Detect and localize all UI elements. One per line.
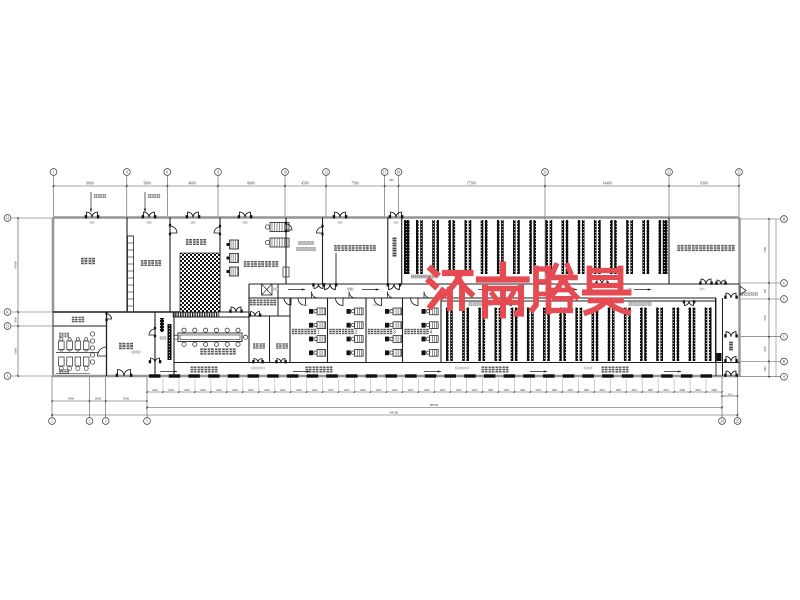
svg-text:8000: 8000	[247, 181, 254, 185]
svg-text:2063: 2063	[631, 389, 637, 392]
svg-text:25: 25	[736, 419, 740, 423]
svg-text:1800: 1800	[679, 389, 685, 392]
svg-text:2: 2	[355, 330, 358, 336]
svg-text:3000: 3000	[764, 346, 767, 352]
svg-text:2063: 2063	[280, 389, 286, 392]
svg-text:6300: 6300	[14, 347, 18, 354]
svg-text:9800: 9800	[86, 181, 93, 185]
svg-text:1800: 1800	[360, 389, 366, 392]
svg-text:4: 4	[126, 170, 128, 174]
svg-text:84192: 84192	[390, 410, 399, 414]
svg-text:2063: 2063	[184, 389, 190, 392]
svg-text:2063: 2063	[312, 389, 318, 392]
svg-text:2063: 2063	[504, 389, 510, 392]
svg-text:2063: 2063	[472, 389, 478, 392]
svg-text:2063: 2063	[216, 389, 222, 392]
svg-text:18: 18	[397, 170, 401, 174]
svg-text:1800: 1800	[264, 389, 270, 392]
svg-text:68592: 68592	[430, 403, 439, 407]
svg-text:1800: 1800	[711, 389, 717, 392]
svg-text:1800: 1800	[232, 389, 238, 392]
svg-text:21: 21	[543, 170, 547, 174]
svg-text:1: 1	[51, 419, 53, 423]
svg-text:8300: 8300	[700, 181, 707, 185]
svg-text:12: 12	[324, 170, 328, 174]
svg-text:24: 24	[720, 419, 724, 423]
svg-text:F: F	[783, 297, 785, 301]
svg-text:5000: 5000	[143, 181, 150, 185]
svg-text:960: 960	[389, 178, 394, 182]
svg-text:2063: 2063	[536, 389, 542, 392]
svg-text:1800: 1800	[15, 317, 18, 323]
svg-text:2000: 2000	[95, 396, 102, 400]
svg-text:A: A	[6, 374, 9, 378]
svg-text:14400: 14400	[603, 181, 612, 185]
svg-text:17500: 17500	[467, 181, 476, 185]
svg-text:3: 3	[393, 330, 396, 336]
svg-text:7500: 7500	[763, 247, 767, 254]
svg-text:H: H	[783, 217, 786, 221]
svg-text:A: A	[783, 375, 786, 379]
svg-text:5: 5	[146, 419, 148, 423]
svg-text:2063: 2063	[376, 389, 382, 392]
svg-text:1800: 1800	[328, 389, 334, 392]
svg-text:4000: 4000	[188, 181, 195, 185]
svg-text:1800: 1800	[168, 389, 174, 392]
svg-text:6: 6	[166, 170, 168, 174]
svg-text:7500: 7500	[351, 181, 358, 185]
svg-text:1: 1	[53, 170, 55, 174]
svg-text:1800: 1800	[583, 389, 589, 392]
svg-text:4: 4	[430, 330, 433, 336]
svg-text:2063: 2063	[248, 389, 254, 392]
svg-text:1800: 1800	[520, 389, 526, 392]
svg-text:G: G	[783, 281, 786, 285]
svg-text:2063: 2063	[408, 389, 414, 392]
svg-text:8: 8	[217, 170, 219, 174]
svg-text:1800: 1800	[488, 389, 494, 392]
svg-text:25: 25	[737, 170, 741, 174]
svg-text:1800: 1800	[200, 389, 206, 392]
svg-text:1800: 1800	[296, 389, 302, 392]
svg-text:1800: 1800	[647, 389, 653, 392]
svg-text:14500: 14500	[14, 261, 18, 269]
svg-text:2063: 2063	[764, 366, 767, 372]
svg-text:5000: 5000	[123, 396, 130, 400]
svg-text:2: 2	[89, 419, 91, 423]
svg-text:2063: 2063	[567, 389, 573, 392]
svg-text:4300: 4300	[68, 396, 75, 400]
svg-text:1800: 1800	[551, 389, 557, 392]
svg-text:2063: 2063	[599, 389, 605, 392]
svg-text:2063: 2063	[663, 389, 669, 392]
svg-text:1800: 1800	[456, 389, 462, 392]
svg-text:1800: 1800	[424, 389, 430, 392]
svg-text:2063: 2063	[728, 393, 734, 396]
svg-text:2063: 2063	[344, 389, 350, 392]
svg-text:1800: 1800	[615, 389, 621, 392]
svg-text:2063: 2063	[440, 389, 446, 392]
svg-text:17: 17	[383, 170, 387, 174]
svg-text:23: 23	[667, 170, 671, 174]
svg-text:1800: 1800	[392, 389, 398, 392]
svg-text:2063: 2063	[152, 389, 158, 392]
svg-text:H: H	[6, 216, 9, 220]
svg-text:K: K	[6, 310, 9, 314]
svg-text:5300: 5300	[764, 315, 767, 321]
svg-text:10: 10	[283, 170, 287, 174]
svg-text:4500: 4500	[301, 181, 308, 185]
svg-text:2063: 2063	[695, 389, 701, 392]
svg-text:3: 3	[105, 419, 107, 423]
svg-text:1: 1	[317, 330, 320, 336]
svg-text:D: D	[6, 324, 9, 328]
